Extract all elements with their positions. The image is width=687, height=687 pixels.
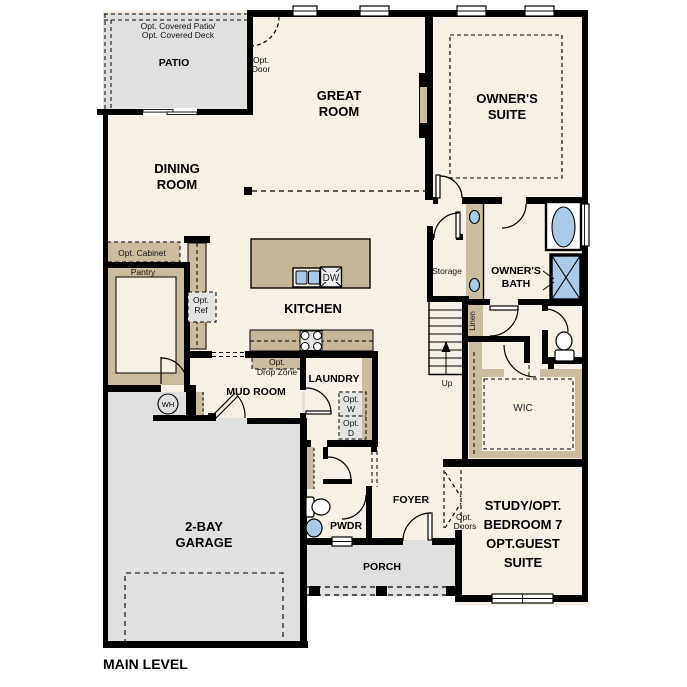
svg-text:Opt. Covered Deck: Opt. Covered Deck	[142, 30, 215, 40]
svg-text:SUITE: SUITE	[504, 555, 543, 570]
svg-text:Opt.: Opt.	[193, 295, 209, 305]
svg-text:Doors: Doors	[454, 521, 477, 531]
svg-text:Up: Up	[442, 378, 453, 388]
svg-text:GARAGE: GARAGE	[175, 535, 232, 550]
svg-text:Ref: Ref	[194, 305, 208, 315]
svg-text:KITCHEN: KITCHEN	[284, 301, 342, 316]
svg-text:OWNER'S: OWNER'S	[476, 91, 538, 106]
svg-text:ROOM: ROOM	[157, 177, 197, 192]
svg-text:2-BAY: 2-BAY	[185, 519, 223, 534]
svg-text:Opt. Cabinet: Opt. Cabinet	[118, 248, 166, 258]
svg-text:STUDY/OPT.: STUDY/OPT.	[485, 498, 562, 513]
svg-text:MAIN LEVEL: MAIN LEVEL	[103, 656, 188, 672]
svg-text:Pantry: Pantry	[131, 267, 156, 277]
svg-text:DINING: DINING	[154, 161, 200, 176]
svg-text:D: D	[348, 428, 354, 438]
svg-text:FOYER: FOYER	[393, 494, 430, 506]
svg-text:LAUNDRY: LAUNDRY	[309, 373, 360, 385]
svg-text:Linen: Linen	[468, 311, 477, 331]
svg-text:PWDR: PWDR	[330, 520, 362, 532]
svg-text:OPT.GUEST: OPT.GUEST	[486, 536, 560, 551]
svg-text:BEDROOM 7: BEDROOM 7	[484, 517, 563, 532]
svg-text:DW: DW	[323, 273, 340, 284]
svg-text:Drop Zone: Drop Zone	[257, 367, 297, 377]
svg-text:Opt.: Opt.	[269, 357, 285, 367]
svg-text:ROOM: ROOM	[319, 104, 359, 119]
svg-text:GREAT: GREAT	[317, 88, 362, 103]
svg-text:MUD ROOM: MUD ROOM	[226, 386, 286, 398]
svg-text:Door: Door	[252, 64, 271, 74]
svg-text:PATIO: PATIO	[159, 57, 190, 69]
svg-text:WH: WH	[162, 400, 175, 409]
svg-text:WIC: WIC	[513, 403, 532, 414]
svg-text:W: W	[347, 404, 355, 414]
svg-text:PORCH: PORCH	[363, 561, 401, 573]
svg-text:Opt.: Opt.	[343, 418, 359, 428]
svg-text:SUITE: SUITE	[488, 107, 527, 122]
svg-text:Opt.: Opt.	[343, 394, 359, 404]
svg-text:BATH: BATH	[502, 278, 530, 290]
svg-text:OWNER'S: OWNER'S	[491, 265, 541, 277]
svg-text:Storage: Storage	[432, 266, 462, 276]
